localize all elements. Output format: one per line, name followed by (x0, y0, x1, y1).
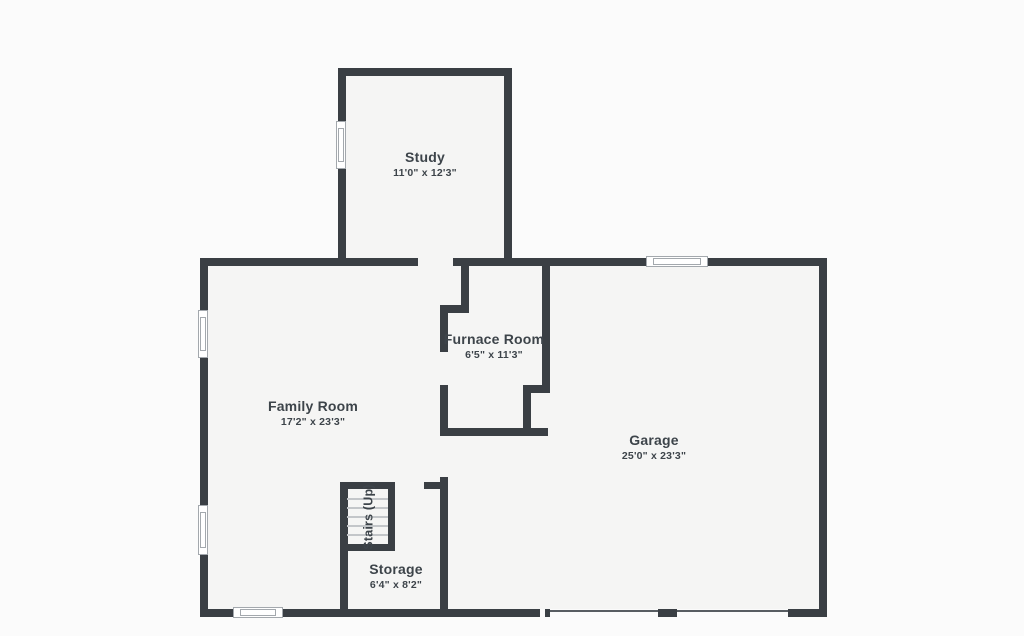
wall-main-right (819, 258, 827, 617)
wall-stairs-right (388, 482, 395, 551)
family-left-window-2 (198, 505, 208, 555)
wall-furnace-bottom (440, 428, 548, 436)
room-dimensions: 6'4" x 8'2" (369, 578, 423, 593)
study-left-window (336, 121, 346, 169)
room-dimensions: 17'2" x 23'3" (268, 415, 358, 430)
garage-top-window (646, 256, 708, 267)
room-dimensions: 6'5" x 11'3" (444, 348, 544, 363)
wall-main-top-left (200, 258, 418, 266)
wall-garage-center-post (658, 609, 677, 617)
room-label-study: Study 11'0" x 12'3" (393, 149, 457, 181)
room-label-storage: Storage 6'4" x 8'2" (369, 561, 423, 593)
room-name: Family Room (268, 398, 358, 415)
window-pane (200, 512, 206, 548)
room-name: Garage (622, 432, 686, 449)
window-pane (200, 317, 206, 351)
room-dimensions: 11'0" x 12'3" (393, 166, 457, 181)
window-pane (240, 609, 276, 616)
wall-furnace-right (542, 266, 550, 393)
room-name: Storage (369, 561, 423, 578)
room-label-furnace-room: Furnace Room 6'5" x 11'3" (444, 331, 544, 363)
room-name: Study (393, 149, 457, 166)
window-pane (338, 128, 344, 162)
room-label-family-room: Family Room 17'2" x 23'3" (268, 398, 358, 430)
wall-main-bottom-right (788, 609, 827, 617)
main-floor-area (208, 266, 819, 609)
wall-main-top-right (453, 258, 827, 266)
room-label-garage: Garage 25'0" x 23'3" (622, 432, 686, 464)
garage-door-sill (677, 610, 788, 612)
room-label-stairs: Stairs (Up) (361, 484, 378, 549)
floor-plan: Study 11'0" x 12'3" Family Room 17'2" x … (0, 0, 1024, 636)
family-left-window-1 (198, 310, 208, 358)
window-pane (653, 258, 701, 265)
wall-storage-right (440, 477, 448, 617)
room-dimensions: 25'0" x 23'3" (622, 449, 686, 464)
wall-study-right (504, 68, 512, 266)
wall-furnace-jog2-v (523, 385, 531, 436)
room-name: Stairs (Up) (361, 484, 378, 549)
garage-door-sill (550, 610, 658, 612)
room-name: Furnace Room (444, 331, 544, 348)
family-bottom-window (233, 607, 283, 618)
wall-study-top (338, 68, 512, 76)
